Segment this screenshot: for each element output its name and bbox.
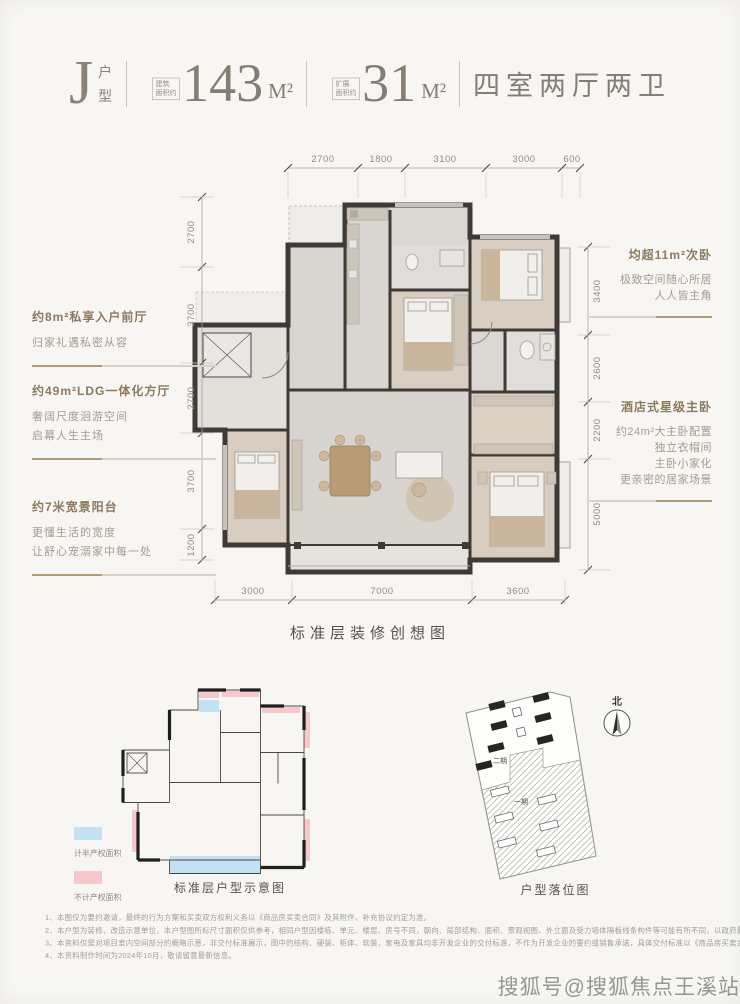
footnotes: 1、本图仅为要约邀请，最终的行为方案和买卖双方权利义务以《商品房买卖合同》及其附… xyxy=(45,914,722,965)
half-area-balcony xyxy=(170,856,260,873)
dim-label: 3000 xyxy=(512,154,535,165)
bed-master xyxy=(478,472,556,546)
annotation-line: 启幕人生主场 xyxy=(32,427,216,446)
annotation-foyer: 约8m²私享入户前厅 归家礼遇私密从容 xyxy=(32,308,216,367)
annotation-balcony: 约7米宽景阳台 更懂生活的宽度 让舒心宠溺家中每一处 xyxy=(32,498,216,576)
annotation-rule xyxy=(32,574,216,576)
site-plan-caption: 户型落位图 xyxy=(468,881,643,898)
annotation-line: 奢阔尺度洄游空间 xyxy=(32,408,216,427)
dim-label: 2600 xyxy=(592,356,603,379)
main-floorplan xyxy=(195,205,570,572)
dim-label: 5000 xyxy=(592,502,603,525)
annotation-line: 约24m²大主卧配置 xyxy=(588,424,712,440)
schematic-interior-walls xyxy=(138,706,304,868)
half-area-laundry xyxy=(199,700,219,712)
annotation-title: 约7米宽景阳台 xyxy=(32,498,216,515)
footnote: 1、本图仅为要约邀请，最终的行为方案和买卖双方权利义务以《商品房买卖合同》及其附… xyxy=(45,914,722,923)
watermark: 搜狐号@搜狐焦点王溪站 xyxy=(498,971,740,1001)
schematic-floorplan xyxy=(123,690,310,874)
annotation-line: 主卧小家化 xyxy=(588,456,712,472)
legend-swatch-half-area xyxy=(74,827,102,840)
cloakroom-shelf xyxy=(474,396,553,406)
excluded-area xyxy=(222,691,259,697)
annotation-line: 人人皆主角 xyxy=(588,288,712,304)
dim-label: 600 xyxy=(563,154,580,165)
dim-label: 1800 xyxy=(369,154,392,165)
dim-label: 3600 xyxy=(506,586,529,597)
excluded-area xyxy=(199,691,219,698)
tv-console xyxy=(292,440,302,510)
footnote: 4、本资料制作时间为2024年10月，敬请留意最新信息。 xyxy=(45,952,722,961)
dim-label: 3100 xyxy=(433,154,456,165)
legend-swatch-excluded-area xyxy=(74,871,102,884)
annotation-title: 均超11m²次卧 xyxy=(588,246,712,263)
cloakroom-shelf xyxy=(474,444,553,454)
legend-label-half-area: 计半产权面积 xyxy=(74,847,122,859)
bed-bedroom-2 xyxy=(404,298,452,370)
annotation-line: 更懂生活的宽度 xyxy=(32,524,216,543)
excluded-area xyxy=(262,707,300,713)
phase-2-label: 二期 xyxy=(493,757,507,765)
bed-bedroom-1 xyxy=(482,250,542,300)
main-plan-caption: 标准层装修创想图 xyxy=(0,622,740,643)
annotation-rule xyxy=(588,500,712,502)
footnote: 2、本户型为装修、改造示意单位，本户型图所标尺寸面积仅供参考，相同户型因楼栋、单… xyxy=(45,927,722,936)
room-living-dining xyxy=(288,390,470,545)
dim-label: 2700 xyxy=(311,154,334,165)
room-balcony xyxy=(288,545,470,572)
annotation-line: 独立衣帽间 xyxy=(588,440,712,456)
schematic-elevator-cross xyxy=(127,753,147,773)
annotation-master-bedroom: 酒店式星级主卧 约24m²大主卧配置 独立衣帽间 主卧小家化 更亲密的居家场景 xyxy=(588,398,712,502)
equipment-platform xyxy=(289,206,343,244)
annotation-title: 约49m²LDG一体化方厅 xyxy=(32,382,216,399)
annotation-line: 极致空间随心所居 xyxy=(588,272,712,288)
schematic-outline xyxy=(123,690,304,874)
phase-1-label: 一期 xyxy=(514,798,528,806)
area-legend: 计半产权面积 不计产权面积 xyxy=(74,827,140,915)
annotation-rule xyxy=(32,365,216,367)
schematic-caption: 标准层户型示意图 xyxy=(110,879,350,896)
annotation-ldg-hall: 约49m²LDG一体化方厅 奢阔尺度洄游空间 启幕人生主场 xyxy=(32,382,216,460)
legend-label-excluded-area: 不计产权面积 xyxy=(74,891,122,903)
dim-label: 2700 xyxy=(186,220,197,243)
wardrobe-bedroom-2 xyxy=(454,295,468,365)
annotation-line: 更亲密的居家场景 xyxy=(588,472,712,488)
bed-bedroom-3 xyxy=(235,452,279,518)
annotation-line: 让舒心宠溺家中每一处 xyxy=(32,543,216,562)
dim-label: 3000 xyxy=(241,586,264,597)
site-plan: 二期 一期 北 xyxy=(466,692,630,879)
annotation-rule xyxy=(588,316,712,318)
north-label: 北 xyxy=(612,695,622,708)
dim-label: 7000 xyxy=(370,586,393,597)
room-corridor xyxy=(288,245,345,390)
annotation-title: 约8m²私享入户前厅 xyxy=(32,308,216,325)
dimension-top: 2700 1800 3100 3000 600 xyxy=(284,154,584,198)
dimension-bottom: 3000 7000 3600 xyxy=(211,580,569,604)
dim-label: 3700 xyxy=(186,469,197,492)
floorplan-flyer: J 户 型 建筑 面积约 143 M² 扩展 面积约 31 M² 四室两厅两卫 xyxy=(0,0,740,1004)
schematic-wall-accents xyxy=(123,690,304,868)
annotation-title: 酒店式星级主卧 xyxy=(588,398,712,415)
footnote: 3、本资料仅是对项目室内空间部分的概略示意，非交付标准展示，图中的结构、硬装、柜… xyxy=(45,939,722,948)
annotation-rule xyxy=(32,458,216,460)
annotation-secondary-bedrooms: 均超11m²次卧 极致空间随心所居 人人皆主角 xyxy=(588,246,712,318)
annotation-line: 归家礼遇私密从容 xyxy=(32,334,216,353)
north-compass-icon: 北 xyxy=(604,695,630,736)
